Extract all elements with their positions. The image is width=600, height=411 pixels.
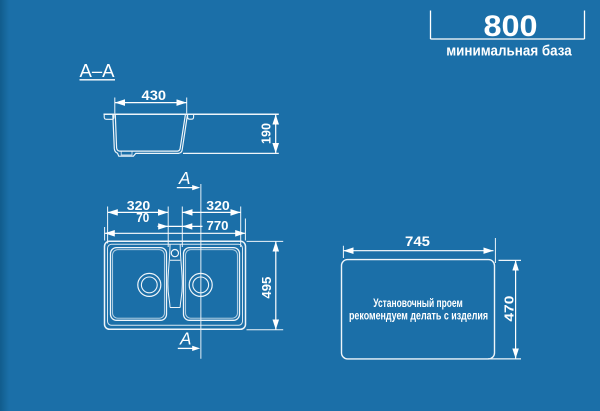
svg-text:70: 70: [136, 211, 149, 225]
svg-text:430: 430: [142, 87, 167, 103]
svg-text:320: 320: [206, 198, 230, 213]
svg-text:745: 745: [405, 234, 431, 249]
svg-text:минимальная база: минимальная база: [446, 43, 572, 59]
svg-text:495: 495: [259, 277, 274, 299]
svg-text:A: A: [179, 328, 191, 348]
svg-text:A: A: [178, 168, 190, 188]
svg-text:A–A: A–A: [80, 60, 116, 81]
svg-text:190: 190: [259, 123, 274, 144]
svg-text:800: 800: [484, 10, 538, 43]
svg-text:770: 770: [207, 219, 229, 233]
svg-text:Установочный проем: Установочный проем: [373, 298, 463, 310]
svg-text:470: 470: [502, 296, 517, 322]
svg-text:рекомендуем делать с изделия: рекомендуем делать с изделия: [349, 310, 488, 322]
